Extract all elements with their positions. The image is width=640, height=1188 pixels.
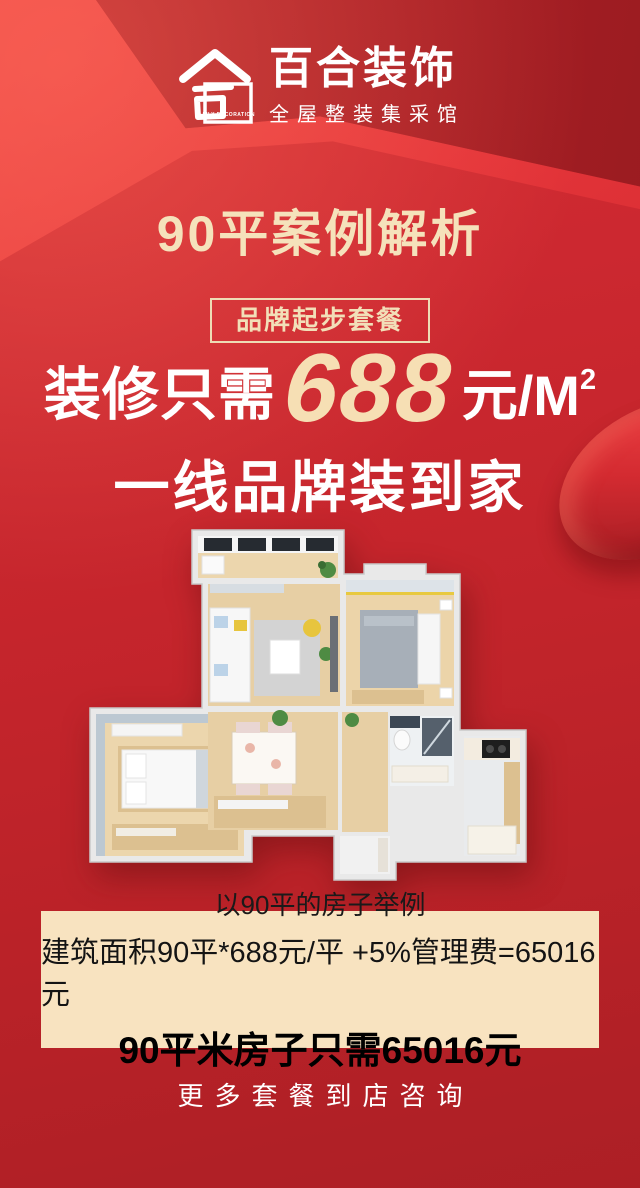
floorplan-image — [84, 524, 530, 884]
offer-slogan: 一线品牌装到家 — [0, 443, 640, 524]
offer-price: 688 — [273, 350, 465, 432]
room-kitchen — [464, 736, 520, 856]
calc-formula-line: 建筑面积90平*688元/平 +5%管理费=65016元 — [41, 929, 599, 1013]
offer-line: 装修只需 688 元/M2 — [0, 350, 640, 432]
offer-prefix: 装修只需 — [44, 367, 276, 432]
brand-tagline: 全屋整装集采馆 — [269, 98, 465, 127]
room-balcony — [198, 536, 338, 578]
brand-logo-icon: LILY DECORATION — [175, 46, 257, 126]
offer-unit: 元/M2 — [462, 366, 596, 432]
room-dining — [208, 710, 338, 830]
brand-stamp-text: LILY DECORATION — [203, 112, 255, 118]
calc-box: 以90平的房子举例 建筑面积90平*688元/平 +5%管理费=65016元 9… — [41, 911, 599, 1048]
page-title: 90平案例解析 — [0, 194, 640, 266]
room-master-bedroom — [346, 580, 454, 706]
calc-total-line: 90平米房子只需65016元 — [118, 1020, 521, 1074]
calc-example-line: 以90平的房子举例 — [215, 885, 426, 922]
brand-logo-texts: 百合装饰 全屋整装集采馆 — [269, 46, 465, 127]
brand-logo: LILY DECORATION 百合装饰 全屋整装集采馆 — [0, 46, 640, 127]
brand-name: 百合装饰 — [269, 46, 465, 92]
footer-cta: 更多套餐到店咨询 — [0, 1076, 640, 1113]
offer-unit-superscript: 2 — [580, 364, 596, 396]
room-entry — [340, 836, 390, 874]
room-hallway — [342, 712, 388, 832]
room-bathroom — [390, 716, 454, 786]
room-living — [208, 584, 340, 706]
poster: LILY DECORATION 百合装饰 全屋整装集采馆 90平案例解析 品牌起… — [0, 0, 640, 1188]
